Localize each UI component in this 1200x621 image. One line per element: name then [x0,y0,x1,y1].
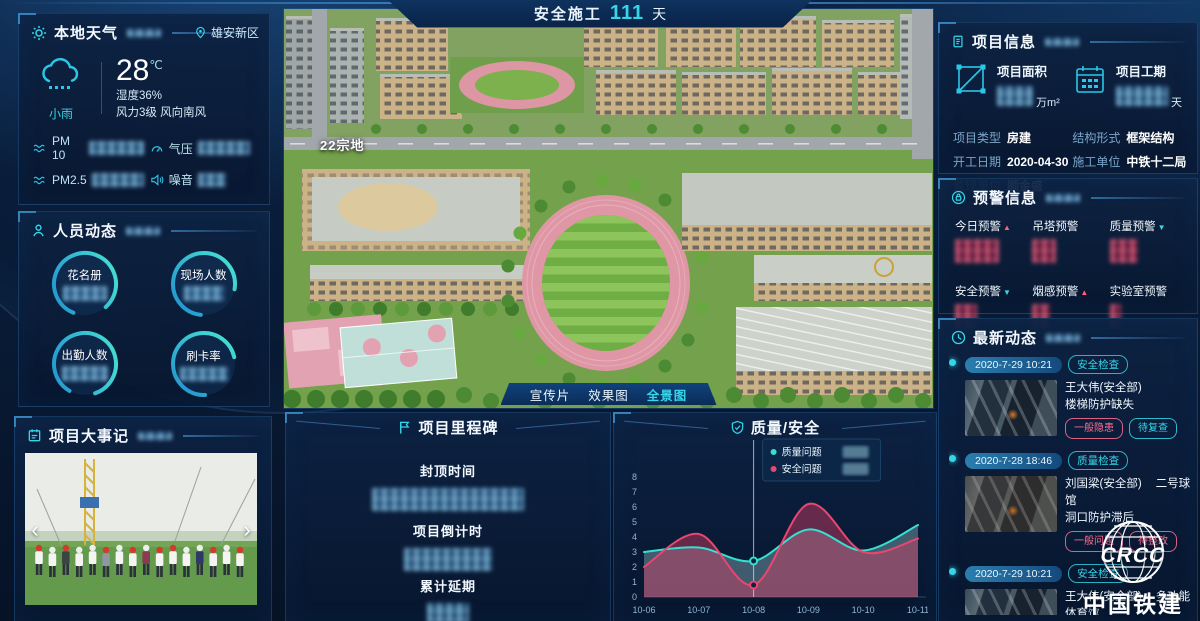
inspector-name: 王大伟(安全部) [1065,591,1142,603]
redacted-value [198,141,250,155]
alert-shield-icon [951,190,966,205]
stat-ring: 现场人数 [168,248,240,320]
view-mode-button[interactable]: 全景图 [647,385,688,404]
feed-thumbnail [965,476,1057,532]
speaker-icon [150,174,164,186]
district-label: 雄安新区 [211,24,259,41]
cloud-rain-icon [35,55,87,97]
redacted-value [404,548,492,571]
svg-text:10-07: 10-07 [687,605,710,615]
view-mode-button[interactable]: 效果图 [588,385,629,404]
calendar-note-icon [27,428,42,443]
shield-check-icon [730,420,745,435]
redacted-value [184,286,224,301]
svg-text:安全问题: 安全问题 [782,463,822,476]
metric-label: 噪音 [169,171,193,188]
redacted-stamp [1046,194,1080,202]
svg-text:3: 3 [632,547,637,557]
inspector-name: 刘国梁(安全部) [1065,478,1142,490]
district-chip[interactable]: 雄安新区 [194,24,259,41]
trend-icon: ▼ [1003,288,1011,297]
feed-panel: 最新动态 2020-7-29 10:21安全检查 王大伟(安全部) 楼梯防护缺失… [938,318,1198,621]
status-tag: 一般问题 [1065,531,1123,552]
info-row: 开工日期2020-04-30 [953,153,1068,170]
waves-icon [33,142,47,154]
svg-text:10-10: 10-10 [852,605,875,615]
redacted-value [1032,239,1056,263]
sun-icon [31,25,47,41]
alert-cell: 质量预警▼ [1110,217,1181,268]
redacted-stamp [127,29,161,37]
svg-text:7: 7 [632,487,637,497]
document-icon [951,34,965,49]
trend-icon: ▲ [1080,288,1088,297]
panel-title: 最新动态 [973,327,1037,348]
temperature: 28℃ [116,54,206,88]
view-mode-button[interactable]: 宣传片 [530,385,571,404]
weather-condition: 小雨 [35,105,87,122]
info-row: 施工单位中铁十二局 [1072,153,1186,170]
person-icon [31,223,46,238]
view-mode-bar: 宣传片 效果图 全景图 [501,383,717,405]
info-row: 项目类型房建 [953,129,1068,146]
quality-safety-chart: 01234567810-0610-0710-0810-0910-1010-11质… [622,435,928,621]
dashboard: 22宗地 宣传片 效果图 全景图 安全施工 111 天 本地天气 雄安新区 小雨 [0,0,1200,621]
page-header: 安全施工 111 天 [388,0,812,28]
area-icon [953,61,989,97]
humidity: 湿度36% [116,88,206,105]
feed-type-badge: 安全检查 [1068,355,1128,374]
metric-label: 气压 [169,140,193,157]
feed-type-badge: 安全检查 [1068,564,1128,583]
issue-text: 洞口防护滞后 [1065,510,1193,527]
svg-text:10-06: 10-06 [632,605,655,615]
alert-cell: 吊塔预警 [1032,217,1103,268]
svg-text:2: 2 [632,562,637,572]
redacted-value [372,488,524,511]
stat-duration: 项目工期天 [1072,61,1183,111]
redacted-value [89,141,143,155]
flag-icon [397,420,412,435]
safe-days-unit: 天 [652,4,666,24]
redacted-value [198,173,226,187]
site-3d-view[interactable]: 22宗地 宣传片 效果图 全景图 [283,8,934,409]
svg-text:质量问题: 质量问题 [782,446,822,459]
trend-icon: ▲ [1003,223,1011,232]
calendar-icon [1072,61,1108,97]
stat-area: 项目面积万m² [953,61,1064,111]
milestone-item: 封顶时间 [286,461,610,516]
site-render [284,9,933,409]
project-info-panel: 项目信息 项目面积万m² 项目工期天 项目类型房建 结构形式框架结构 开工日期2… [938,22,1198,174]
wind: 风力3级 风向南风 [116,105,206,122]
metric-label: PM2.5 [52,173,87,187]
carousel-next-icon[interactable]: › [239,519,255,543]
alert-cell: 今日预警▲ [955,217,1026,268]
feed-thumbnail [965,380,1057,436]
info-row: 结构形式框架结构 [1072,129,1186,146]
feed-item[interactable]: 2020-7-28 18:46质量检查 刘国梁(安全部)二号球馆 洞口防护滞后 … [949,449,1193,562]
redacted-value [180,367,228,381]
feed-type-badge: 质量检查 [1068,451,1128,470]
weather-panel: 本地天气 雄安新区 小雨 28℃ 湿度36% 风力3级 风向南风 PM 10 气… [18,13,270,205]
redacted-value [92,173,144,187]
feed-date: 2020-7-29 10:21 [965,566,1062,582]
svg-text:0: 0 [632,592,637,602]
svg-text:6: 6 [632,502,637,512]
feed-date: 2020-7-28 18:46 [965,453,1062,469]
issue-text: 楼梯防护缺失 [1065,397,1177,414]
svg-text:8: 8 [632,472,637,482]
redacted-value [955,239,999,263]
panel-title: 项目里程碑 [418,417,498,438]
stat-ring: 花名册 [49,248,121,320]
stat-ring: 出勤人数 [49,328,121,400]
redacted-value [1110,239,1138,263]
feed-item[interactable]: 2020-7-29 10:21安全检查 王大伟(安全部) 楼梯防护缺失 一般隐患… [949,353,1193,449]
redacted-value [1116,86,1168,106]
weather-current: 小雨 28℃ 湿度36% 风力3级 风向南风 [35,54,206,122]
carousel-prev-icon[interactable]: ‹ [27,519,43,543]
gauge-icon [150,142,164,154]
svg-text:4: 4 [632,532,637,542]
svg-text:10-08: 10-08 [742,605,765,615]
feed-list: 2020-7-29 10:21安全检查 王大伟(安全部) 楼梯防护缺失 一般隐患… [949,353,1193,615]
safe-days-value: 111 [610,2,644,25]
status-tag: 一般隐患 [1065,418,1123,439]
redacted-stamp [1046,334,1080,342]
alerts-panel: 预警信息 今日预警▲ 吊塔预警 质量预警▼ 安全预警▼ 烟感预警▲ 实验室预警 [938,178,1198,314]
panel-title: 项目大事记 [49,425,129,446]
redacted-stamp [1045,38,1079,46]
panel-title: 本地天气 [54,22,118,43]
clock-icon [951,330,966,345]
milestone-item: 累计延期 [286,576,610,621]
plot-label: 22宗地 [320,135,364,154]
panel-title: 项目信息 [972,31,1036,52]
milestone-item: 项目倒计时 [286,521,610,576]
feed-date: 2020-7-29 10:21 [965,357,1062,373]
svg-text:10-11: 10-11 [907,605,928,615]
metric-label: PM 10 [52,134,84,162]
redacted-value [63,286,107,301]
svg-text:5: 5 [632,517,637,527]
feed-thumbnail [965,589,1057,615]
redacted-stamp [138,432,172,440]
redacted-stamp [126,227,160,235]
waves-icon [33,174,47,186]
personnel-rings: 花名册 现场人数 出勤人数 刷卡率 [25,248,263,400]
status-tag: 待复查 [1129,418,1177,439]
redacted-value [427,603,469,621]
feed-item[interactable]: 2020-7-29 10:21安全检查 王大伟(安全部)多功能体育馆 楼梯防护缺… [949,562,1193,615]
svg-text:1: 1 [632,577,637,587]
redacted-value [997,86,1033,106]
milestones-panel: 项目里程碑 封顶时间 项目倒计时 累计延期 [285,412,611,621]
stat-ring: 刷卡率 [168,328,240,400]
svg-text:10-09: 10-09 [797,605,820,615]
header-title: 安全施工 [534,3,602,24]
weather-metrics: PM 10 气压 PM2.5 噪音 [33,134,257,188]
panel-title: 预警信息 [973,187,1037,208]
panel-title: 人员动态 [53,220,117,241]
status-tag: 待整改 [1129,531,1177,552]
inspector-name: 王大伟(安全部) [1065,382,1142,394]
milestone-photo: ‹ › [25,453,257,605]
location-pin-icon [194,26,207,39]
trend-icon: ▼ [1158,223,1166,232]
events-panel: 项目大事记 ‹ › [14,416,272,621]
redacted-value [62,366,108,381]
quality-safety-panel: 质量/安全 01234567810-0610-0710-0810-0910-10… [613,412,937,621]
personnel-panel: 人员动态 花名册 现场人数 出勤人数 刷卡率 [18,211,270,407]
